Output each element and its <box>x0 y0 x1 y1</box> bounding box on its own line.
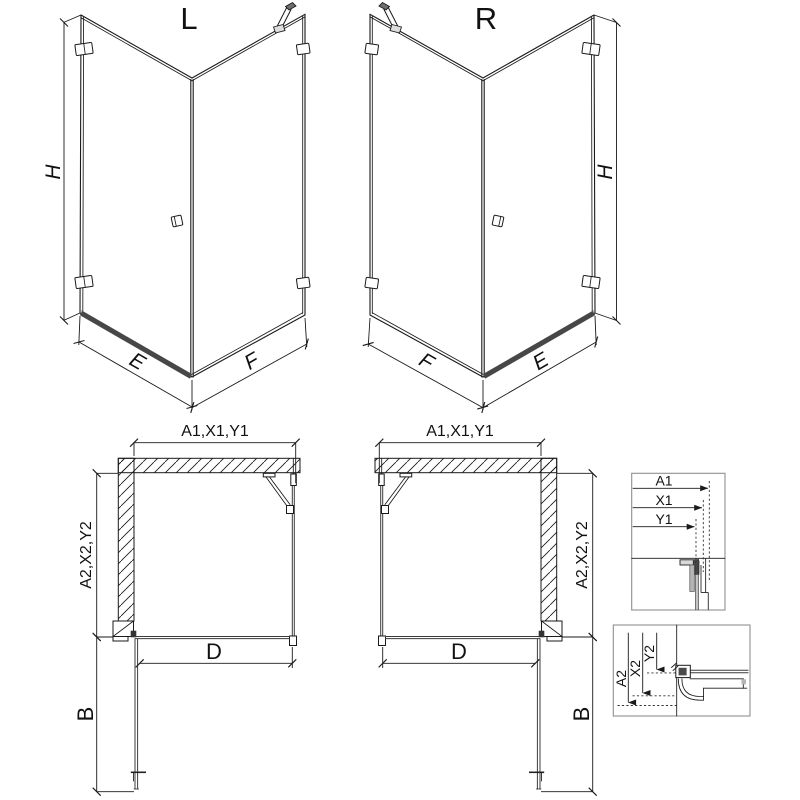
technical-drawing-page: L <box>0 0 800 800</box>
plan-right-dim-side-label: A2,X2,Y2 <box>574 521 591 589</box>
iso-right-wall-clamp-bottom <box>365 277 379 289</box>
iso-left-wall-clamp-top <box>296 43 310 55</box>
iso-left-dim-height: H <box>42 15 81 321</box>
iso-view-left: L <box>42 1 310 410</box>
iso-left-dim-fixed: F <box>192 318 306 408</box>
iso-left-dim-height-label: H <box>42 164 65 180</box>
iso-right-door-knob <box>492 215 504 227</box>
detail-top-profile: A1 X1 Y1 <box>632 473 725 611</box>
iso-right-wall-clamp-top <box>365 43 379 55</box>
plan-right-wall-end-cap <box>542 621 563 641</box>
shower-enclosure-diagram: L <box>0 0 800 800</box>
iso-left-wall-clamp-bottom <box>296 277 310 289</box>
plan-right-door-hinge <box>539 631 545 638</box>
plan-left-door-closed <box>131 631 290 639</box>
detail-top-dim1-label: A1 <box>655 473 672 489</box>
plan-right-dim-open-door: B <box>541 637 594 792</box>
plan-right-dim-top-label: A1,X1,Y1 <box>426 423 494 440</box>
detail-bottom-glass-profile <box>672 663 749 700</box>
iso-right-hinge-bottom <box>582 275 600 288</box>
detail-bottom-profile: A2 X2 Y2 <box>613 625 750 716</box>
plan-right-top-wall <box>375 458 557 472</box>
plan-left-door-open <box>131 639 146 789</box>
plan-left-dim-top-label: A1,X1,Y1 <box>181 423 249 440</box>
iso-right-dim-height: H <box>594 15 617 321</box>
iso-right-support-bar <box>379 3 402 34</box>
iso-left-dim-fixed-label: F <box>240 348 264 375</box>
plan-right-door-closed <box>385 631 544 639</box>
iso-left-title: L <box>180 1 197 36</box>
plan-left-fixed-glass <box>290 458 297 645</box>
iso-left-door-knob <box>171 215 183 227</box>
iso-right-dim-fixed-label: F <box>415 348 439 375</box>
iso-right-corner-edge <box>482 80 484 378</box>
plan-left-dim-open-door: B <box>73 637 134 792</box>
iso-right-dim-height-label: H <box>594 164 617 180</box>
plan-left-dim-side-label: A2,X2,Y2 <box>78 521 95 589</box>
plan-left-dim-side: A2,X2,Y2 <box>78 473 118 637</box>
detail-bottom-dim3-label: Y2 <box>641 645 657 662</box>
iso-view-right: R <box>365 1 617 410</box>
plan-right-door-open <box>529 639 544 789</box>
iso-right-hinge-top <box>582 42 600 55</box>
detail-top-dim2-label: X1 <box>655 492 672 508</box>
plan-left-dim-open-door-label: B <box>73 707 98 722</box>
iso-left-hinge-top <box>75 42 93 55</box>
plan-left-top-wall <box>118 458 300 472</box>
iso-right-title: R <box>475 1 497 36</box>
iso-left-hinge-bottom <box>75 275 93 288</box>
plan-right-dim-door-label: D <box>451 639 467 664</box>
iso-left-support-bar <box>274 3 297 34</box>
plan-left-support-brace <box>263 473 293 513</box>
plan-right-support-brace <box>382 473 412 513</box>
iso-right-dim-fixed: F <box>368 318 483 408</box>
detail-top-glass-profile <box>680 558 708 610</box>
plan-right-dim-door: D <box>383 639 536 668</box>
plan-view-right: A1,X1,Y1 A2,X2,Y2 B D <box>375 423 594 792</box>
iso-right-dim-door: E <box>483 316 596 410</box>
plan-left-wall-end-cap <box>113 621 134 641</box>
iso-right-dim-door-label: E <box>529 348 553 375</box>
plan-right-dim-side: A2,X2,Y2 <box>557 473 593 637</box>
plan-view-left: A1,X1,Y1 A2,X2,Y2 B D <box>73 423 300 792</box>
plan-right-dim-open-door-label: B <box>569 707 594 722</box>
plan-right-fixed-glass <box>379 458 386 645</box>
detail-top-dim3-label: Y1 <box>655 511 672 527</box>
iso-left-corner-edge <box>191 80 193 378</box>
iso-left-dim-door: E <box>79 316 192 410</box>
plan-left-dim-door-label: D <box>206 639 222 664</box>
plan-left-side-wall <box>118 458 134 621</box>
plan-right-side-wall <box>541 458 557 621</box>
plan-left-dim-door: D <box>140 639 293 668</box>
plan-left-door-hinge <box>131 631 137 638</box>
iso-right-fixed-panel <box>370 14 483 377</box>
iso-left-fixed-panel <box>192 14 305 377</box>
